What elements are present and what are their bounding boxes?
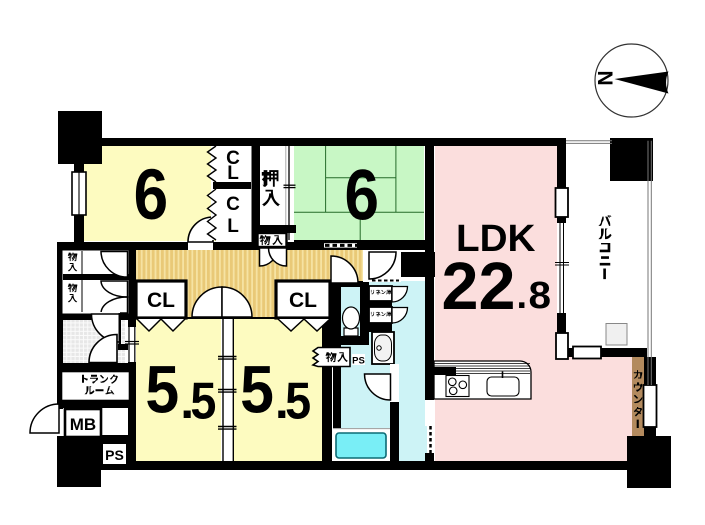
svg-text:PS: PS (105, 447, 124, 463)
svg-text:6: 6 (134, 155, 169, 235)
svg-text:MB: MB (70, 415, 96, 434)
svg-text:6: 6 (345, 156, 380, 236)
svg-text:CL: CL (147, 289, 175, 312)
svg-text:.: . (517, 275, 528, 317)
svg-text:8: 8 (529, 275, 552, 317)
svg-text:C: C (226, 194, 240, 215)
svg-text:5: 5 (285, 373, 311, 431)
svg-text:L: L (227, 163, 239, 184)
svg-text:22: 22 (442, 249, 516, 324)
svg-text:L: L (227, 216, 239, 237)
svg-text:5: 5 (190, 373, 216, 431)
svg-text:CL: CL (289, 289, 317, 312)
svg-text:N: N (595, 70, 618, 85)
svg-text:PS: PS (352, 356, 365, 367)
svg-text:5: 5 (240, 353, 274, 428)
svg-text:5: 5 (145, 353, 179, 428)
